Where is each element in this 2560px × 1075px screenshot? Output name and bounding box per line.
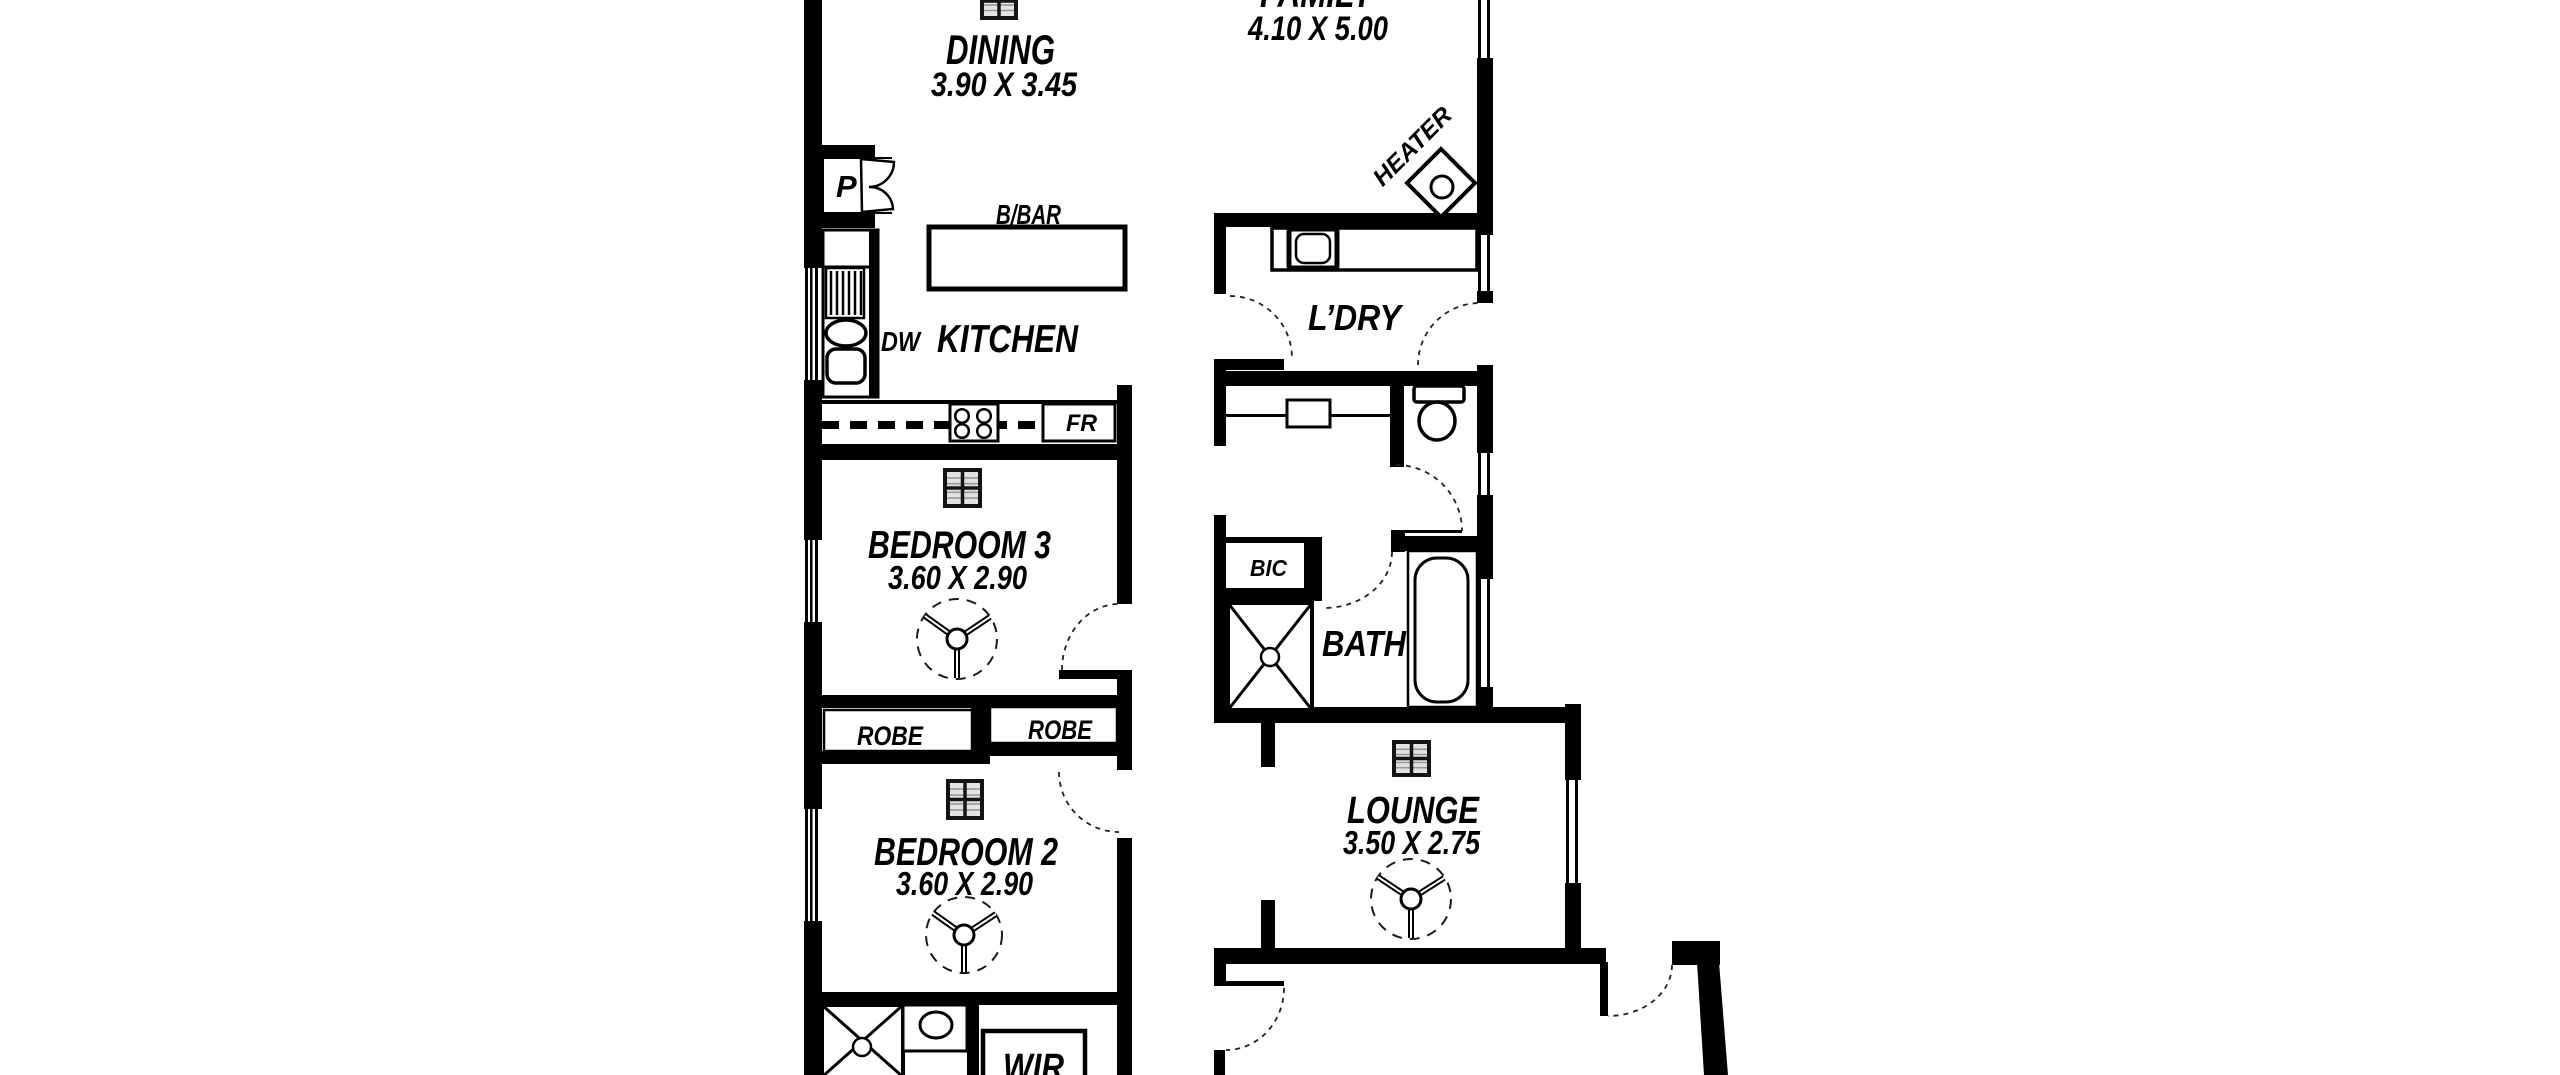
svg-text:KITCHEN: KITCHEN (937, 318, 1079, 361)
svg-text:3.60 X 2.90: 3.60 X 2.90 (888, 559, 1028, 596)
svg-text:ROBE: ROBE (1028, 715, 1093, 745)
svg-text:ROBE: ROBE (857, 721, 924, 751)
svg-text:B/BAR: B/BAR (996, 199, 1062, 230)
svg-text:BATH: BATH (1322, 623, 1407, 664)
svg-text:WIR: WIR (1003, 1047, 1064, 1075)
svg-text:BIC: BIC (1250, 555, 1287, 581)
svg-text:3.50 X 2.75: 3.50 X 2.75 (1343, 824, 1481, 861)
svg-text:P: P (836, 169, 857, 204)
svg-text:DW: DW (881, 326, 922, 357)
svg-text:L’DRY: L’DRY (1308, 297, 1404, 338)
svg-text:FR: FR (1066, 410, 1098, 437)
svg-text:4.10 X 5.00: 4.10 X 5.00 (1247, 10, 1388, 48)
svg-text:3.90 X 3.45: 3.90 X 3.45 (931, 66, 1078, 104)
svg-text:3.60 X 2.90: 3.60 X 2.90 (896, 865, 1034, 902)
